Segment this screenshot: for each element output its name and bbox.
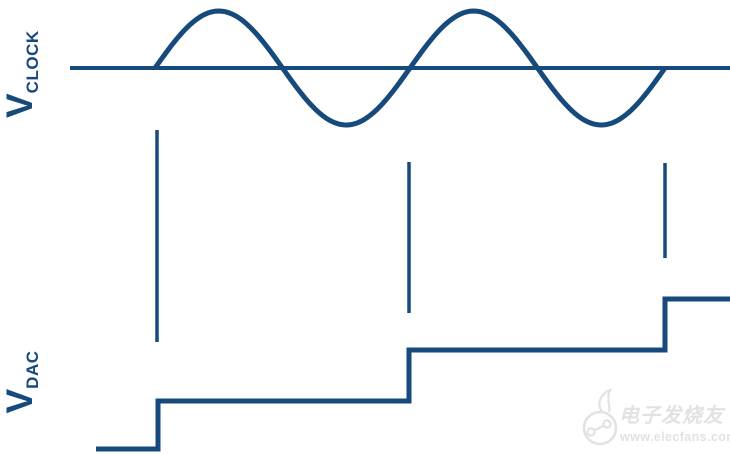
vclock-label: VCLOCK bbox=[0, 34, 40, 118]
watermark-brand-text: 电子发烧友 bbox=[619, 399, 729, 428]
vdac-subscript: DAC bbox=[23, 350, 42, 388]
vdac-label: VDAC bbox=[0, 340, 40, 424]
vclock-subscript: CLOCK bbox=[23, 30, 42, 93]
vclock-symbol: V bbox=[0, 93, 40, 118]
sample-lines bbox=[157, 130, 665, 342]
watermark-url-text: www.elecfans.com bbox=[620, 430, 730, 444]
timing-diagram: VCLOCK VDAC 电子发烧友 www.elecfans.com bbox=[0, 0, 730, 454]
vdac-symbol: V bbox=[0, 389, 40, 414]
